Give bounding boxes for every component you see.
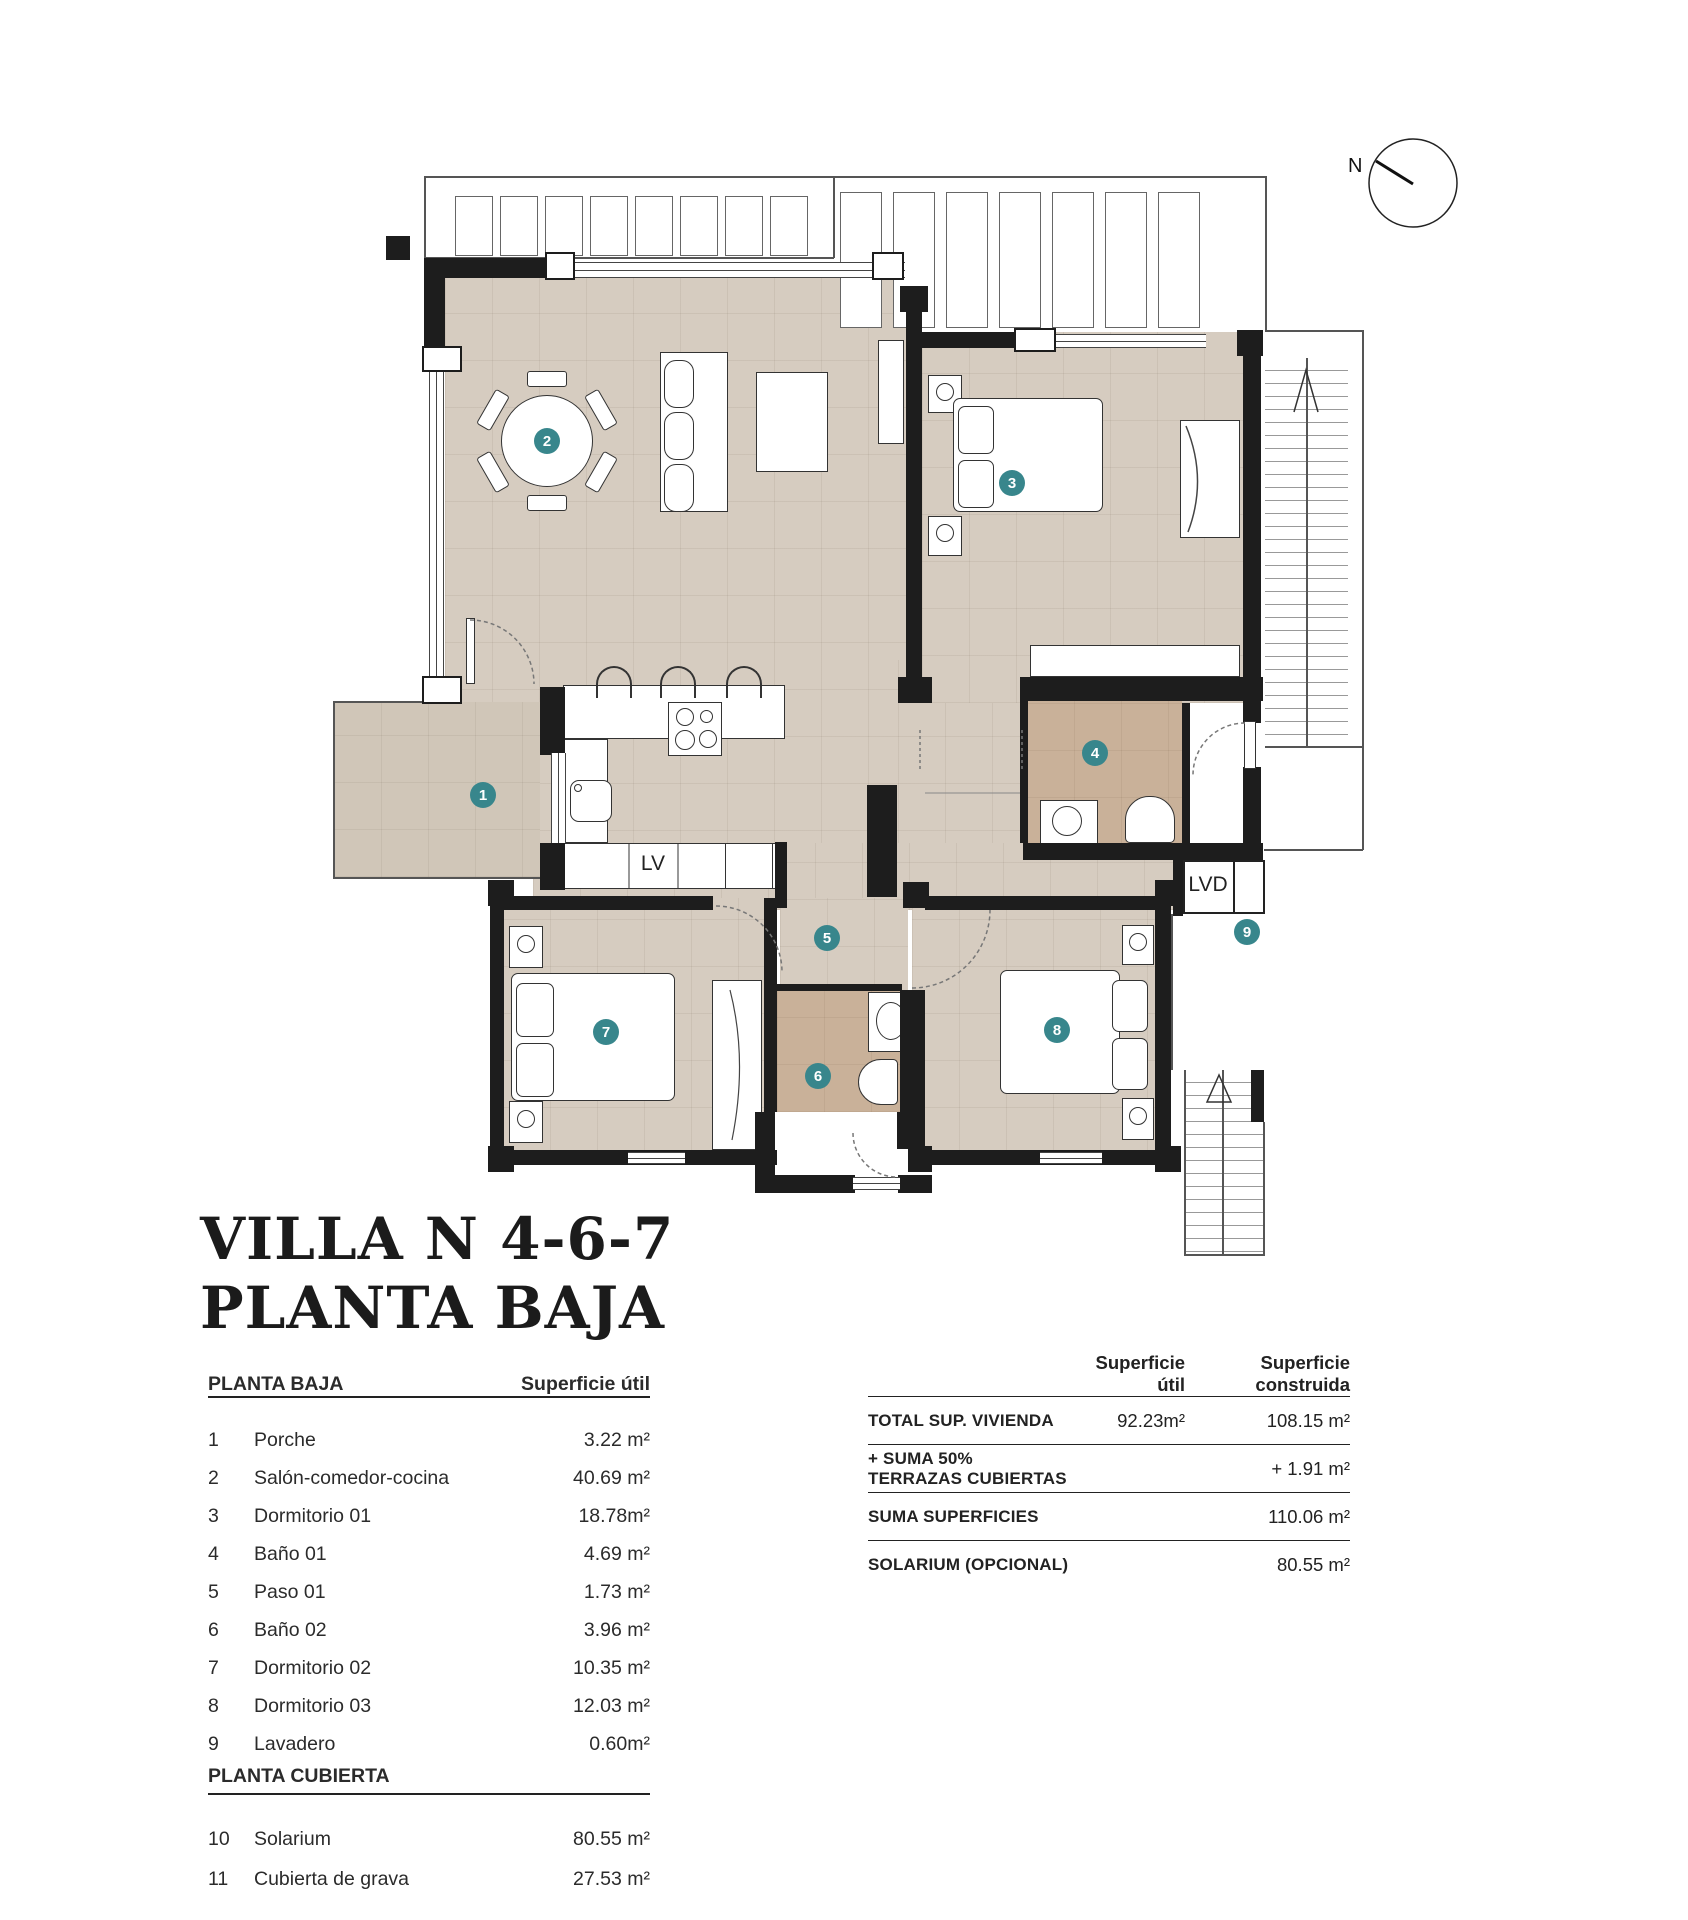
site-outline: [1265, 176, 1267, 332]
bar-stool: [726, 666, 762, 698]
wall: [908, 1150, 1170, 1165]
window: [1056, 334, 1206, 348]
table-row: 6Baño 023.96 m²: [208, 1611, 650, 1649]
entry-alcove-floor: [773, 1112, 902, 1175]
sink-tap: [574, 784, 582, 792]
row-name: Lavadero: [254, 1733, 589, 1756]
row-name: Dormitorio 02: [254, 1657, 573, 1680]
wall: [1182, 703, 1190, 845]
compass-icon: [1369, 139, 1457, 227]
row-value: 40.69 m²: [573, 1467, 650, 1490]
pergola-slat: [545, 196, 583, 256]
porch-outline: [333, 877, 541, 879]
porch-floor: [334, 702, 540, 877]
washbasin-bowl: [1052, 806, 1082, 836]
pillar: [1014, 328, 1056, 352]
sofa-cushion: [664, 464, 694, 512]
row-util: 92.23m²: [1070, 1410, 1185, 1432]
site-outline: [1171, 914, 1173, 1070]
wall: [1155, 898, 1171, 1155]
pergola-slat: [1158, 192, 1200, 328]
row-construida: 80.55 m²: [1185, 1554, 1350, 1576]
right-table-col1: Superficie útil: [1070, 1352, 1185, 1396]
wall: [490, 896, 713, 910]
row-label: SUMA SUPERFICIES: [868, 1507, 1070, 1527]
stairs-lower-outline: [1184, 1070, 1186, 1255]
pergola-slat: [946, 192, 988, 328]
row-name: Porche: [254, 1429, 584, 1452]
row-num: 5: [208, 1581, 254, 1604]
stairs-upper-stringer: [1306, 358, 1308, 747]
pergola-slat: [725, 196, 763, 256]
row-construida: 110.06 m²: [1185, 1506, 1350, 1528]
bed-pillow: [958, 460, 994, 508]
pillar: [422, 346, 462, 372]
table-row: + SUMA 50% TERRAZAS CUBIERTAS + 1.91 m²: [868, 1445, 1350, 1493]
nightstand-lamp: [1129, 933, 1147, 951]
row-num: 2: [208, 1467, 254, 1490]
hallway-branch-floor: [780, 898, 908, 994]
porch-outline: [333, 701, 425, 703]
stairs-lower-stringer: [1222, 1070, 1224, 1254]
pillar: [488, 1146, 514, 1172]
nightstand-lamp: [936, 383, 954, 401]
nightstand-lamp: [517, 935, 535, 953]
page-title-line2: PLANTA BAJA: [200, 1274, 674, 1343]
row-label: + SUMA 50% TERRAZAS CUBIERTAS: [868, 1449, 1070, 1489]
row-num: 9: [208, 1733, 254, 1756]
row-num: 4: [208, 1543, 254, 1566]
stove-burner: [699, 730, 717, 748]
table-row: 1Porche3.22 m²: [208, 1421, 650, 1459]
door-swing-arc: [1193, 723, 1245, 775]
wall: [1020, 677, 1243, 701]
page-title: VILLA N 4-6-7 PLANTA BAJA: [200, 1205, 674, 1343]
table-row: 10Solarium80.55 m²: [208, 1819, 650, 1859]
row-num: 7: [208, 1657, 254, 1680]
sofa-cushion: [664, 412, 694, 460]
sofa-cushion: [664, 360, 694, 408]
living-cabinet: [878, 340, 904, 444]
toilet: [858, 1059, 898, 1105]
row-name: Solarium: [254, 1828, 573, 1851]
window: [628, 1152, 685, 1164]
row-num: 8: [208, 1695, 254, 1718]
wall: [1023, 843, 1263, 860]
row-value: 3.22 m²: [584, 1429, 650, 1452]
stove-burner: [700, 710, 713, 723]
table-row: SOLARIUM (OPCIONAL) 80.55 m²: [868, 1541, 1350, 1588]
pillar: [1237, 330, 1263, 356]
window: [853, 1177, 900, 1190]
room-badge-3: 3: [999, 470, 1025, 496]
row-num: 3: [208, 1505, 254, 1528]
wardrobe: [1180, 420, 1240, 538]
row-value: 80.55 m²: [573, 1828, 650, 1851]
table-row: TOTAL SUP. VIVIENDA 92.23m² 108.15 m²: [868, 1397, 1350, 1445]
pillar: [488, 880, 514, 906]
row-value: 1.73 m²: [584, 1581, 650, 1604]
pillar: [545, 252, 575, 280]
row-num: 10: [208, 1828, 254, 1851]
row-value: 27.53 m²: [573, 1868, 650, 1891]
row-construida: + 1.91 m²: [1185, 1458, 1350, 1480]
row-num: 1: [208, 1429, 254, 1452]
table-row: 9Lavadero0.60m²: [208, 1725, 650, 1763]
site-outline: [1362, 330, 1364, 850]
site-outline: [424, 176, 426, 260]
row-name: Salón-comedor-cocina: [254, 1467, 573, 1490]
wall: [777, 984, 902, 991]
row-num: 6: [208, 1619, 254, 1642]
dining-chair: [527, 371, 567, 387]
row-name: Paso 01: [254, 1581, 584, 1604]
row-value: 10.35 m²: [573, 1657, 650, 1680]
pergola-slat: [1105, 192, 1147, 328]
row-construida: 108.15 m²: [1185, 1410, 1350, 1432]
pergola-slat: [455, 196, 493, 256]
bed-pillow: [1112, 980, 1148, 1032]
door-leaf: [1244, 721, 1256, 769]
bar-stool: [596, 666, 632, 698]
porch-outline: [333, 701, 335, 878]
row-label: SOLARIUM (OPCIONAL): [868, 1555, 1070, 1575]
stairs-upper-end: [1265, 746, 1363, 748]
right-table-header: Superficie útil Superficie construida: [868, 1360, 1350, 1397]
stair-wall-stub: [1251, 1070, 1264, 1122]
row-name: Baño 02: [254, 1619, 584, 1642]
floor-plan-page: LV: [0, 0, 1688, 1920]
wall: [764, 898, 777, 1112]
dishwasher-label: LV: [628, 852, 678, 876]
door-leaf: [466, 618, 475, 684]
pergola-slat: [635, 196, 673, 256]
surface-totals-table: Superficie útil Superficie construida TO…: [868, 1360, 1350, 1588]
wall: [898, 1175, 932, 1193]
dining-chair: [527, 495, 567, 511]
row-name: Dormitorio 01: [254, 1505, 578, 1528]
compass-needle-icon: [1376, 161, 1413, 184]
pergola-slat: [500, 196, 538, 256]
tv-bench: [756, 372, 828, 472]
bed-pillow: [516, 983, 554, 1037]
stairs-lower-outline: [1184, 1254, 1265, 1256]
table-row: 2Salón-comedor-cocina40.69 m²: [208, 1459, 650, 1497]
row-value: 4.69 m²: [584, 1543, 650, 1566]
row-value: 12.03 m²: [573, 1695, 650, 1718]
window: [545, 262, 905, 278]
pillar: [386, 236, 410, 260]
wall: [867, 785, 897, 897]
washer-unit-divider: [1233, 862, 1235, 912]
wall: [897, 1112, 915, 1149]
wall: [490, 898, 504, 1155]
wall: [906, 288, 922, 703]
left-table-section1-title: PLANTA BAJA: [208, 1373, 343, 1396]
table-row: 7Dormitorio 0210.35 m²: [208, 1649, 650, 1687]
row-value: 0.60m²: [589, 1733, 650, 1756]
pillar: [1155, 1146, 1181, 1172]
table-row: 4Baño 014.69 m²: [208, 1535, 650, 1573]
row-name: Cubierta de grava: [254, 1868, 573, 1891]
stove-burner: [675, 730, 695, 750]
left-table-header: PLANTA BAJA Superficie útil: [208, 1360, 650, 1398]
room-badge-6: 6: [805, 1063, 831, 1089]
wall: [540, 843, 565, 890]
table-row: 11Cubierta de grava27.53 m²: [208, 1859, 650, 1899]
table-row: 3Dormitorio 0118.78m²: [208, 1497, 650, 1535]
nightstand-lamp: [936, 524, 954, 542]
table-row: SUMA SUPERFICIES 110.06 m²: [868, 1493, 1350, 1541]
site-outline: [1264, 849, 1363, 851]
row-name: Baño 01: [254, 1543, 584, 1566]
page-title-line1: VILLA N 4-6-7: [200, 1205, 674, 1274]
wall: [755, 1175, 855, 1193]
bed-pillow: [958, 406, 994, 454]
pergola-slat: [999, 192, 1041, 328]
room-badge-1: 1: [470, 782, 496, 808]
pillar: [1237, 677, 1263, 701]
site-outline: [424, 176, 1267, 178]
compass-north-label: N: [1348, 155, 1362, 178]
wall: [925, 896, 988, 910]
wall: [540, 687, 565, 755]
stove-burner: [676, 708, 694, 726]
nightstand-lamp: [517, 1110, 535, 1128]
surface-table-planta-baja: PLANTA BAJA Superficie útil 1Porche3.22 …: [208, 1360, 650, 1899]
pillar: [903, 882, 929, 908]
row-name: Dormitorio 03: [254, 1695, 573, 1718]
bed-pillow: [1112, 1038, 1148, 1090]
site-outline: [1265, 330, 1363, 332]
room-badge-4: 4: [1082, 740, 1108, 766]
room-badge-2: 2: [534, 428, 560, 454]
row-num: 11: [208, 1868, 254, 1891]
pillar: [1155, 880, 1181, 906]
bed-pillow: [516, 1043, 554, 1097]
room-badge-5: 5: [814, 925, 840, 951]
table-row: 8Dormitorio 0312.03 m²: [208, 1687, 650, 1725]
wall: [424, 258, 445, 348]
row-value: 3.96 m²: [584, 1619, 650, 1642]
pillar: [898, 677, 932, 703]
room-badge-8: 8: [1044, 1017, 1070, 1043]
row-value: 18.78m²: [578, 1505, 650, 1528]
window: [429, 370, 444, 678]
pillar: [872, 252, 904, 280]
window: [1040, 1152, 1102, 1164]
wall: [1020, 700, 1028, 843]
stairs-lower-outline: [1263, 1122, 1265, 1255]
wall: [988, 896, 1157, 910]
pergola-divider: [833, 176, 835, 258]
window: [551, 753, 566, 843]
pergola-slat: [1052, 192, 1094, 328]
left-table-section2-title: PLANTA CUBIERTA: [208, 1765, 650, 1795]
pillar: [900, 286, 928, 312]
pillar: [908, 1146, 932, 1172]
stove: [668, 702, 722, 756]
bar-stool: [660, 666, 696, 698]
pergola-slat: [590, 196, 628, 256]
room-badge-7: 7: [593, 1019, 619, 1045]
left-table-col-value: Superficie útil: [521, 1373, 650, 1396]
wall: [1243, 330, 1261, 723]
pillar: [422, 676, 462, 704]
wall: [922, 332, 1014, 348]
room-badge-9: 9: [1234, 919, 1260, 945]
wardrobe: [1030, 645, 1240, 677]
toilet: [1125, 796, 1175, 843]
nightstand-lamp: [1129, 1107, 1147, 1125]
pergola-slat: [770, 196, 808, 256]
table-row: 5Paso 011.73 m²: [208, 1573, 650, 1611]
counter-appliance: [725, 843, 773, 889]
pergola-slat: [680, 196, 718, 256]
washer-label: LVD: [1183, 873, 1233, 897]
row-label: TOTAL SUP. VIVIENDA: [868, 1411, 1070, 1431]
right-table-col2: Superficie construida: [1185, 1352, 1350, 1396]
